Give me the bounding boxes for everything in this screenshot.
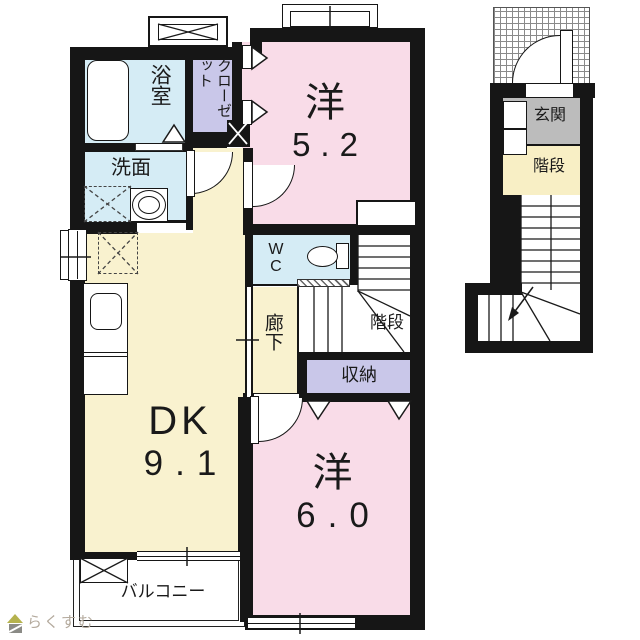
stairwell-void: [356, 200, 417, 227]
watermark-text: らくすむ: [27, 614, 95, 631]
wall-closet-right: [232, 42, 242, 132]
shoe-cabinet-lower: [503, 129, 527, 155]
kitchen-sink: [90, 293, 122, 330]
bathroom-door-opening: [135, 144, 183, 151]
fridge-space: [98, 232, 138, 274]
kitchen-counter-line1: [84, 352, 127, 353]
wall-1f-stair-void: [493, 195, 521, 285]
hallway-label: 廊下: [261, 313, 283, 363]
wall-right: [410, 28, 425, 630]
entrance-label: 玄関: [518, 107, 582, 125]
stairs-1f-label: 階段: [517, 158, 581, 176]
entry-door-leaf: [560, 30, 573, 84]
western-6-0-name: 洋: [313, 450, 353, 496]
washer-space: [84, 186, 131, 222]
balcony-slop-sink: [80, 558, 128, 583]
wall-storage-top: [297, 352, 410, 360]
entry-door-opening: [526, 84, 573, 97]
wall-wc-left: [245, 226, 253, 287]
western-6-0-area: 6.0: [284, 496, 381, 536]
wall-closet-bottom: [185, 132, 227, 148]
dk-hall-partition-line1: [245, 287, 247, 397]
western-5-2-name: 洋: [305, 80, 345, 126]
western-5-2-label: 洋 5.2: [265, 80, 385, 164]
bathroom-window-inner: [158, 24, 218, 40]
washroom-label: 洗面: [111, 157, 151, 180]
washroom-door-leaf: [186, 150, 195, 197]
floorplan-canvas: 浴室 クローゼット 洗面 洋 5.2 WC 廊下 階段 収納 DK 9.1 洋 …: [0, 0, 640, 640]
western-5-2-window-inner: [290, 11, 370, 27]
wall-balcony-west60: [240, 560, 253, 622]
bathroom-label: 浴室: [147, 64, 171, 122]
dk-area: 9.1: [132, 444, 229, 484]
western-5-2-area: 5.2: [282, 126, 368, 164]
dk-side-window-line: [77, 231, 78, 279]
balcony-label: バルコニー: [108, 582, 218, 602]
storage-label: 収納: [328, 365, 390, 386]
western-6-0-window-line: [248, 623, 355, 624]
wall-1f-bottom: [465, 341, 593, 353]
dk-balcony-window-line: [137, 556, 240, 557]
dk-label: DK 9.1: [105, 398, 255, 484]
dk-name: DK: [148, 398, 212, 444]
stairs-2f-label: 階段: [370, 313, 404, 333]
kitchen-counter-line2: [84, 356, 127, 357]
wall-top-right: [250, 28, 425, 42]
toilet-bowl: [307, 246, 338, 267]
wall-wc-stairs: [350, 235, 358, 285]
wc-label: WC: [266, 241, 284, 285]
closet-door-leaf-1: [242, 45, 252, 69]
western-5-2-door-leaf: [243, 161, 253, 209]
hall-stairs-line: [297, 287, 299, 352]
closet-door-leaf-2: [242, 100, 252, 125]
dk-hall-partition-line2: [251, 287, 253, 397]
vanity-basin-inner: [138, 196, 160, 214]
closet-label: クローゼット: [195, 58, 233, 120]
bathtub: [87, 60, 129, 141]
logo-house-icon: [7, 614, 23, 633]
wc-door-threshold: [297, 279, 350, 287]
western-6-0-label: 洋 6.0: [260, 450, 405, 536]
